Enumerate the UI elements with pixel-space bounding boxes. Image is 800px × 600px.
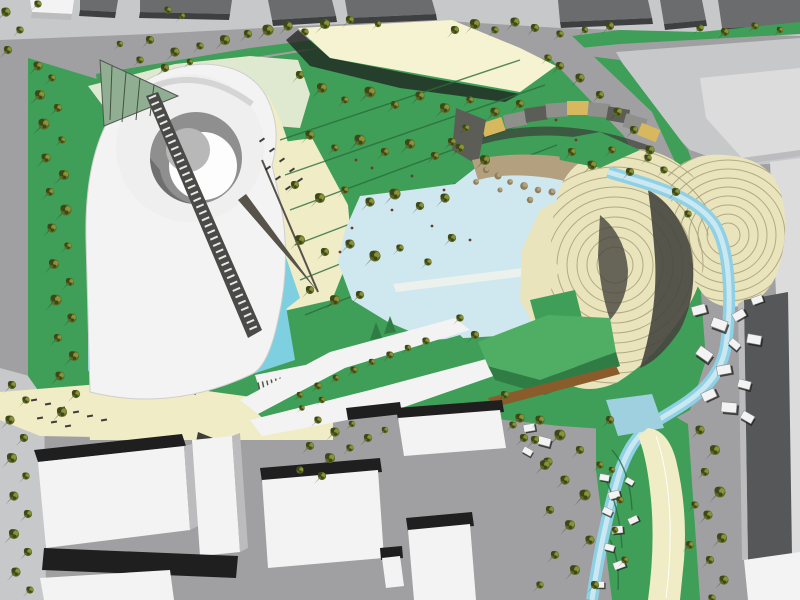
- rock-icon: [535, 187, 541, 193]
- block-e: [408, 524, 476, 600]
- figure-icon: [411, 175, 414, 178]
- rendering-stage: Aerial 3D rendering of a park masterplan…: [0, 0, 800, 600]
- rock-icon: [507, 179, 513, 185]
- figure-icon: [443, 189, 446, 192]
- pavilion-icon: [721, 402, 740, 416]
- block-b: [192, 436, 240, 556]
- rock-icon: [548, 188, 555, 195]
- figure-icon: [391, 209, 394, 212]
- figure-icon: [355, 159, 358, 162]
- rock-icon: [483, 167, 489, 173]
- rock-icon: [527, 197, 533, 203]
- rock-icon: [520, 182, 528, 190]
- figure-icon: [431, 225, 434, 228]
- block-c: [262, 470, 384, 568]
- rock-icon: [497, 187, 502, 192]
- figure-icon: [339, 251, 342, 254]
- block-a: [38, 446, 190, 548]
- figure-icon: [371, 167, 374, 170]
- masterplan-rendering: Aerial 3D rendering of a park masterplan…: [0, 0, 800, 600]
- figure-icon: [555, 119, 558, 122]
- rock-icon: [473, 179, 479, 185]
- rock-icon: [494, 172, 501, 179]
- figure-icon: [469, 239, 472, 242]
- figure-icon: [575, 139, 578, 142]
- block-d: [398, 410, 506, 456]
- southeast-building: [744, 552, 800, 600]
- figure-icon: [351, 227, 354, 230]
